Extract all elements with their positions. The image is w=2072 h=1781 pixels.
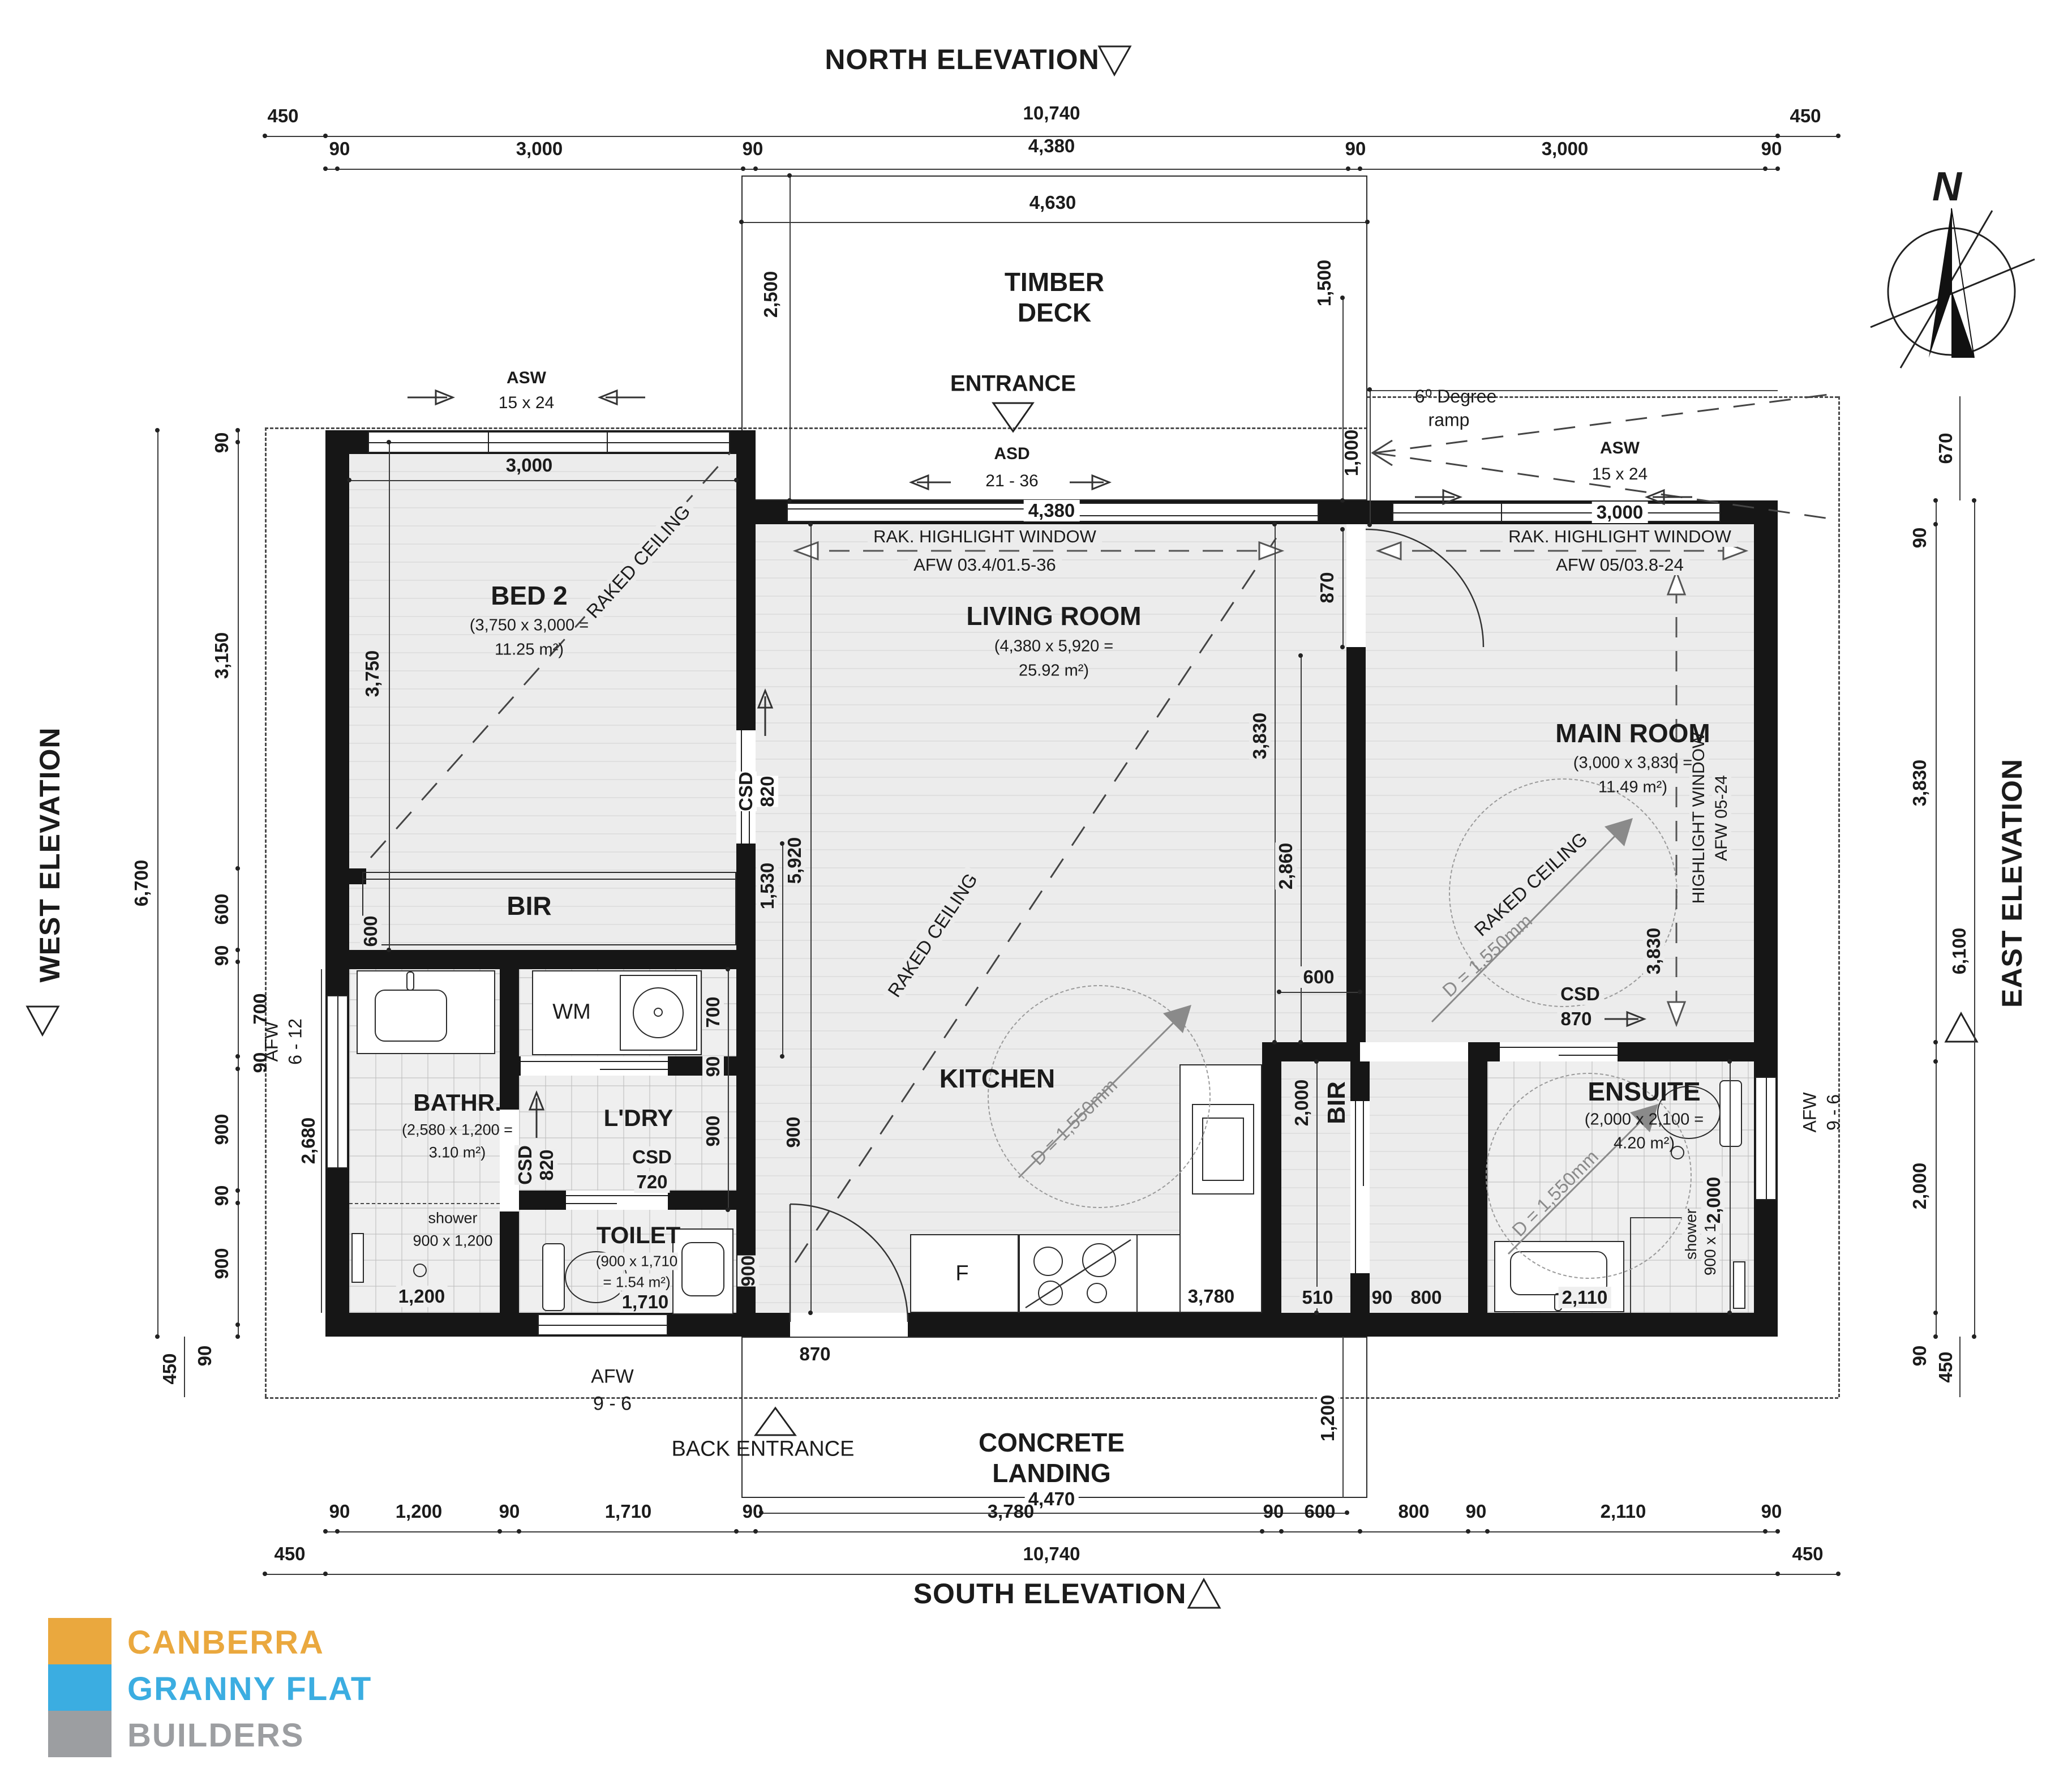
wall-toilet-north-b [668,1191,756,1210]
stove-burner-4 [1087,1283,1107,1303]
dim-label: 90 [1263,1501,1284,1522]
wall-bir2-west [1262,1042,1281,1313]
dim-line [790,175,791,500]
dim-line [761,1513,1347,1514]
deck-label2: DECK [1018,297,1091,328]
stove-burner-2 [1082,1243,1116,1277]
back-door-width: 870 [799,1343,830,1365]
dim-label: 2,860 [1275,843,1297,890]
dim-line [325,1531,1778,1532]
main-title: MAIN ROOM [1555,718,1710,748]
dim-label: 600 [211,893,233,924]
afw-ensuite-label: AFW [1800,1092,1821,1132]
wall-bath-divider-a [500,969,519,1110]
dim-line [389,442,390,950]
logo-block-blue [48,1664,111,1711]
dim-label: 1,500 [1314,260,1335,307]
dim-label: 3,780 [1185,1286,1238,1307]
window-afw-ensuite [1755,1077,1777,1200]
ensuite-shower-label: shower [1682,1209,1700,1260]
bir2-label: BIR [1323,1081,1351,1124]
window-asw-bed2 [368,431,730,453]
door-csd-toilet [566,1191,668,1210]
wall-living-main-divider [1346,647,1366,1042]
landing-label: CONCRETE [979,1427,1125,1458]
ramp-label2: ramp [1428,410,1470,431]
dim-label: 3,830 [1643,928,1665,975]
dim-label: 900 [702,1115,724,1146]
ensuite-shower-column [1733,1261,1745,1309]
dim-label: 90 [1909,1346,1931,1367]
dim-label: 3,830 [1909,760,1931,807]
dim-label: 800 [1410,1287,1442,1308]
bath-shower-label: shower [428,1210,477,1227]
stove-burner-3 [1038,1281,1063,1305]
dim-line [1936,500,1937,1337]
highlight-window-code: AFW 05-24 [1712,775,1731,861]
wall-bath-divider-b [500,1211,519,1313]
dim-label: 90 [211,433,233,453]
dim-line [1275,524,1276,1042]
dim-label: 4,380 [1024,500,1080,521]
dim-label: 450 [1792,1543,1823,1565]
ramp-label: 6⁰ Degree [1415,386,1496,407]
dim-label: 90 [329,1501,350,1522]
dim-line [349,480,736,481]
dim-line [1342,1337,1344,1498]
dim-label: 10,740 [1023,102,1080,124]
dim-label: 2,000 [1703,1177,1724,1224]
dim-line [1959,396,1961,500]
dim-label: 90 [1345,138,1366,160]
kitchen-stove [1019,1234,1138,1313]
dim-label: 800 [1398,1501,1429,1522]
living-area2: 25.92 m²) [1019,662,1089,680]
dim-label: 6,700 [131,860,152,907]
dim-line [1316,1061,1318,1313]
dim-label: 450 [159,1353,181,1384]
floor-plan-canvas: NORTH ELEVATION SOUTH ELEVATION WEST ELE… [0,0,2072,1781]
dim-line [1370,389,1371,525]
dim-label: 1,200 [396,1286,448,1307]
wall-bir2-east-b [1350,1273,1370,1313]
asd-size: 21 - 36 [985,472,1038,491]
dim-line [782,844,783,1056]
north-elevation-title: NORTH ELEVATION [825,43,1099,76]
dim-label: 2,110 [1559,1287,1611,1308]
dim-line [1342,529,1344,647]
deck-label: TIMBER [1005,267,1104,297]
door-csd-laundry [521,1056,668,1076]
wall-bir2-north [1262,1042,1360,1061]
toilet-area2: = 1.54 m²) [603,1274,670,1291]
wall-ensuite-west [1468,1061,1487,1313]
kitchen-title: KITCHEN [940,1063,1055,1094]
dim-label: 6,100 [1949,928,1970,975]
living-title: LIVING ROOM [966,601,1141,631]
dim-line [321,969,322,1313]
laundry-door-size: 820 [536,1149,557,1180]
wall-laundry-south-a [500,1056,521,1076]
setback-west [265,427,267,1397]
dim-label: 3,000 [506,455,553,476]
door-back-gap [790,1313,908,1337]
afw-toilet-label: AFW [591,1366,634,1388]
stove-burner-1 [1033,1247,1063,1276]
living-area: (4,380 x 5,920 = [994,637,1113,656]
dim-label: 90 [1466,1501,1487,1522]
landing-label2: LANDING [992,1458,1111,1488]
dim-label: 2,000 [1291,1080,1312,1127]
dim-line [741,222,1367,223]
bir1-label: BIR [507,890,551,921]
dim-label: 700 [702,996,724,1027]
dim-label: 90 [329,138,350,160]
dim-label: 10,740 [1023,1543,1080,1565]
dim-label: 1,710 [605,1501,652,1522]
setback-east [1838,396,1840,1397]
dim-label: 90 [194,1346,216,1367]
dim-line [1974,500,1975,1337]
bath-drain [413,1264,427,1277]
dim-label: 3,000 [1542,138,1589,160]
bath-title: BATHR. [413,1089,501,1116]
rak-window-living-code: AFW 03.4/01.5-36 [908,555,1062,575]
dim-label: 2,110 [1601,1501,1646,1522]
main-area: (3,000 x 3,830 = [1573,754,1692,773]
laundry-door-label: CSD [514,1145,536,1185]
dim-label: 1,000 [1341,430,1362,477]
bed2-area: (3,750 x 3,000 = [470,616,589,635]
dim-label: 4,630 [1029,192,1076,213]
dim-label: 870 [1316,572,1338,603]
bath-shower-column [351,1233,364,1283]
ensuite-area2: 4.20 m²) [1614,1134,1675,1153]
dim-label: 450 [274,1543,305,1565]
toilet-area: (900 x 1,710 [596,1253,678,1270]
bath-tap [406,971,414,991]
dim-label: 2,500 [760,271,782,318]
south-elevation-title: SOUTH ELEVATION [913,1577,1187,1610]
dim-label: 2,680 [298,1118,319,1164]
window-asw-main [1392,503,1721,522]
logo-block-gray [48,1711,111,1757]
dim-label: 900 [211,1114,233,1145]
dim-label: 3,830 [1249,713,1271,760]
toilet-title: TOILET [597,1222,681,1249]
dim-label: 900 [211,1248,233,1279]
door-bir2-sliding [1350,1101,1370,1273]
rak-window-main-code: AFW 05/03.8-24 [1550,555,1689,575]
dim-label: 90 [211,945,233,966]
asw-bed2-label: ASW [507,369,546,388]
bath-basin [375,990,447,1042]
washing-machine-knob [654,1008,663,1017]
dim-label: 90 [250,1052,271,1073]
dim-label: 90 [743,1501,763,1522]
dim-label: 900 [737,1255,759,1286]
wall-bir1-south [325,950,756,969]
rak-window-living: RAK. HIGHLIGHT WINDOW [868,526,1102,547]
dim-label: 90 [1761,138,1782,160]
asw-main-size: 15 x 24 [1592,465,1648,484]
dim-label: 600 [1304,1501,1335,1522]
dim-label: 1,710 [620,1291,671,1313]
dim-label: 600 [1299,966,1337,988]
dim-label: 450 [1935,1351,1957,1382]
dim-label: 90 [1761,1501,1782,1522]
bed2-area2: 11.25 m²) [495,641,564,660]
asw-bed2-size: 15 x 24 [499,393,554,413]
wall-ensuite-north-a [1468,1042,1500,1061]
dim-label: 1,200 [396,1501,443,1522]
dim-line [1279,992,1360,993]
bath-shower-size: 900 x 1,200 [413,1232,492,1250]
dim-label: 700 [250,993,271,1024]
ensuite-title: ENSUITE [1588,1076,1700,1107]
asd-label: ASD [994,444,1029,464]
laundry-title: L'DRY [604,1104,673,1132]
dim-label: 2,000 [1909,1163,1931,1210]
dim-line [157,430,158,1337]
wall-east [1754,500,1778,1337]
compass-n-label: N [1932,164,1962,210]
dim-label: 3,000 [1592,502,1648,523]
ensuite-area: (2,000 x 2,100 = [1585,1111,1704,1129]
dim-line [184,1337,185,1397]
ensuite-door-label: CSD [1557,983,1603,1005]
wall-west [325,430,349,1337]
east-elevation-title: EAST ELEVATION [1996,759,2028,1008]
ensuite-cistern [1719,1080,1742,1147]
afw-toilet-size: 9 - 6 [593,1393,632,1415]
afw-bath-size: 6 - 12 [285,1018,306,1065]
bath-area: (2,580 x 1,200 = [402,1121,513,1139]
dim-label: 600 [360,915,381,947]
toilet-cistern [542,1243,565,1311]
wall-ensuite-north-b [1618,1042,1754,1061]
door-csd-ensuite [1500,1042,1618,1061]
dim-label: 3,150 [211,632,233,679]
dim-label: 670 [1935,433,1957,464]
bed2-door-label: CSD [735,772,757,811]
logo-text-canberra: CANBERRA [127,1624,324,1662]
toilet-door-size: 720 [634,1171,670,1193]
dim-label: 5,920 [784,837,805,884]
toilet-sink-basin [681,1242,724,1296]
logo-block-orange [48,1618,111,1664]
window-afw-bath [327,995,348,1168]
bath-shower-line [349,1203,500,1204]
dim-label: 1,530 [757,863,778,910]
afw-ensuite-size: 9 - 6 [1824,1094,1844,1131]
dim-line [728,969,729,1210]
dim-label: 3,750 [362,650,383,697]
dim-label: 510 [1299,1287,1335,1308]
dim-label: 90 [1909,528,1931,549]
main-area2: 11.49 m²) [1598,778,1667,797]
west-elevation-title: WEST ELEVATION [33,727,66,982]
bed2-title: BED 2 [491,580,567,611]
wall-bir2-east-a [1350,1061,1370,1101]
dim-line [265,1574,1838,1575]
dim-line [810,524,812,1313]
logo-text-builders: BUILDERS [127,1716,304,1754]
dim-label: 90 [1372,1287,1393,1308]
hall-floor [1366,1061,1468,1313]
dim-label: 3,780 [988,1501,1035,1522]
wall-toilet-north-a [519,1191,566,1210]
dim-label: 90 [702,1056,724,1077]
dim-line [325,169,1778,170]
asw-main-label: ASW [1600,439,1640,458]
toilet-door-label: CSD [630,1146,674,1168]
entrance-label: ENTRANCE [950,371,1076,397]
dim-label: 450 [1790,105,1821,127]
dim-label: 4,380 [1028,135,1075,157]
dim-label: 3,000 [516,138,563,160]
dim-label: 90 [211,1185,233,1206]
kitchen-sink-inner [1202,1118,1244,1181]
bath-area2: 3.10 m²) [429,1144,486,1162]
ensuite-door-size: 870 [1557,1008,1595,1030]
bed2-door-size: 820 [757,776,778,807]
logo-text-grannyflat: GRANNY FLAT [127,1670,372,1708]
dim-label: 900 [783,1116,804,1148]
dim-label: 90 [743,138,763,160]
dim-label: 90 [499,1501,520,1522]
rak-window-main: RAK. HIGHLIGHT WINDOW [1503,526,1737,547]
window-afw-toilet [538,1314,668,1335]
dim-label: 450 [267,105,298,127]
fridge-label: F [955,1262,968,1286]
door-main-swing-gap [1346,529,1366,647]
wm-label: WM [552,1000,591,1025]
timber-deck [741,175,1367,500]
dim-line [1730,1061,1731,1313]
dim-line [1959,1337,1961,1397]
dim-label: 1,200 [1317,1395,1339,1442]
back-entrance-label: BACK ENTRANCE [671,1437,854,1462]
